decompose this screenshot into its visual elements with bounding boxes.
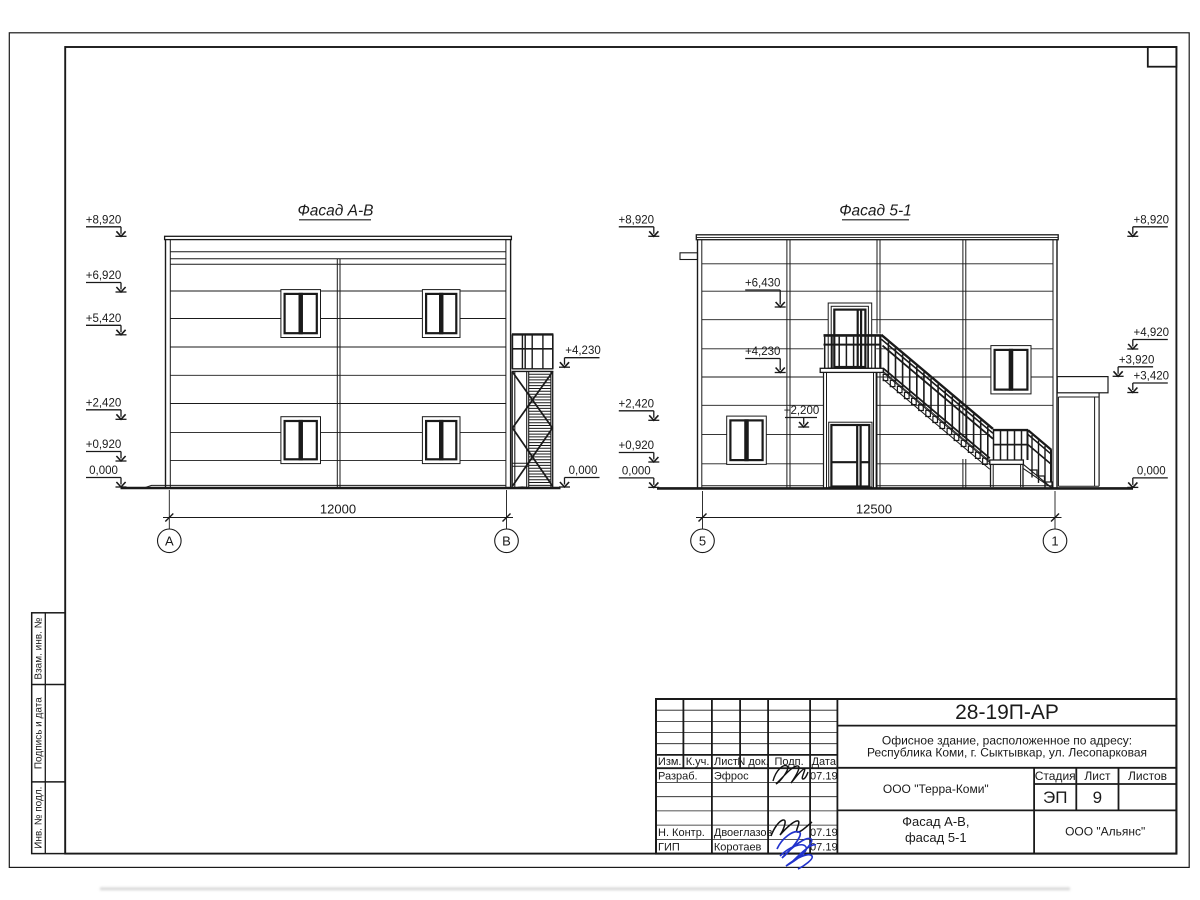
svg-text:+0,920: +0,920 [619,440,655,452]
svg-text:Двоеглазов: Двоеглазов [714,827,773,839]
svg-text:+0,920: +0,920 [86,439,122,451]
svg-text:+8,920: +8,920 [1134,214,1170,226]
svg-text:0,000: 0,000 [89,465,118,477]
svg-text:0,000: 0,000 [1137,465,1166,477]
svg-text:5: 5 [699,533,706,548]
svg-text:9: 9 [1093,788,1102,807]
svg-text:Взам. инв. №: Взам. инв. № [34,617,45,679]
svg-text:+4,230: +4,230 [745,346,781,358]
svg-text:N док.: N док. [737,756,768,768]
svg-text:0,000: 0,000 [569,465,598,477]
svg-text:+4,230: +4,230 [565,345,601,357]
svg-text:Дата: Дата [812,756,837,768]
svg-text:+2,420: +2,420 [619,398,655,410]
svg-text:12500: 12500 [856,502,892,517]
svg-text:1: 1 [1051,533,1058,548]
svg-text:Лист: Лист [1084,769,1111,783]
svg-text:Республика Коми, г. Сыктывкар,: Республика Коми, г. Сыктывкар, ул. Лесоп… [867,746,1147,760]
svg-text:Коротаев: Коротаев [714,842,762,854]
svg-text:12000: 12000 [320,502,356,517]
svg-text:07.19: 07.19 [810,842,838,854]
svg-text:фасад 5-1: фасад 5-1 [905,830,967,845]
svg-text:Инв. № подл.: Инв. № подл. [34,787,45,849]
svg-text:07.19: 07.19 [810,771,838,783]
svg-text:Разраб.: Разраб. [658,771,698,783]
svg-text:+3,920: +3,920 [1119,354,1155,366]
svg-text:28-19П-АР: 28-19П-АР [955,701,1059,724]
svg-text:+6,920: +6,920 [86,270,122,282]
svg-text:ЭП: ЭП [1043,788,1067,807]
svg-text:Подпись и дата: Подпись и дата [34,697,45,769]
svg-text:Фасад 5-1: Фасад 5-1 [839,203,912,220]
svg-text:+8,920: +8,920 [619,214,655,226]
svg-text:Стадия: Стадия [1035,769,1076,783]
svg-text:07.19: 07.19 [810,827,838,839]
svg-text:Фасад А-В,: Фасад А-В, [902,814,969,829]
svg-text:К.уч.: К.уч. [686,756,710,768]
svg-text:Изм.: Изм. [658,756,682,768]
svg-text:Эфрос: Эфрос [714,771,749,783]
svg-text:+4,920: +4,920 [1134,327,1170,339]
svg-text:+2,200: +2,200 [784,405,820,417]
svg-text:В: В [502,533,511,548]
svg-text:Лист: Лист [714,756,738,768]
svg-text:Листов: Листов [1128,769,1167,783]
svg-text:Н. Контр.: Н. Контр. [658,827,705,839]
svg-text:ООО "Альянс": ООО "Альянс" [1065,825,1145,839]
svg-text:ООО "Терра-Коми": ООО "Терра-Коми" [883,782,989,796]
svg-text:+8,920: +8,920 [86,214,122,226]
svg-text:+3,420: +3,420 [1134,371,1170,383]
svg-text:Фасад А-В: Фасад А-В [297,203,373,220]
svg-text:+2,420: +2,420 [86,397,122,409]
svg-text:+6,430: +6,430 [745,278,781,290]
svg-text:ГИП: ГИП [658,842,680,854]
svg-text:+5,420: +5,420 [86,313,122,325]
svg-text:0,000: 0,000 [622,465,651,477]
svg-text:А: А [165,533,174,548]
